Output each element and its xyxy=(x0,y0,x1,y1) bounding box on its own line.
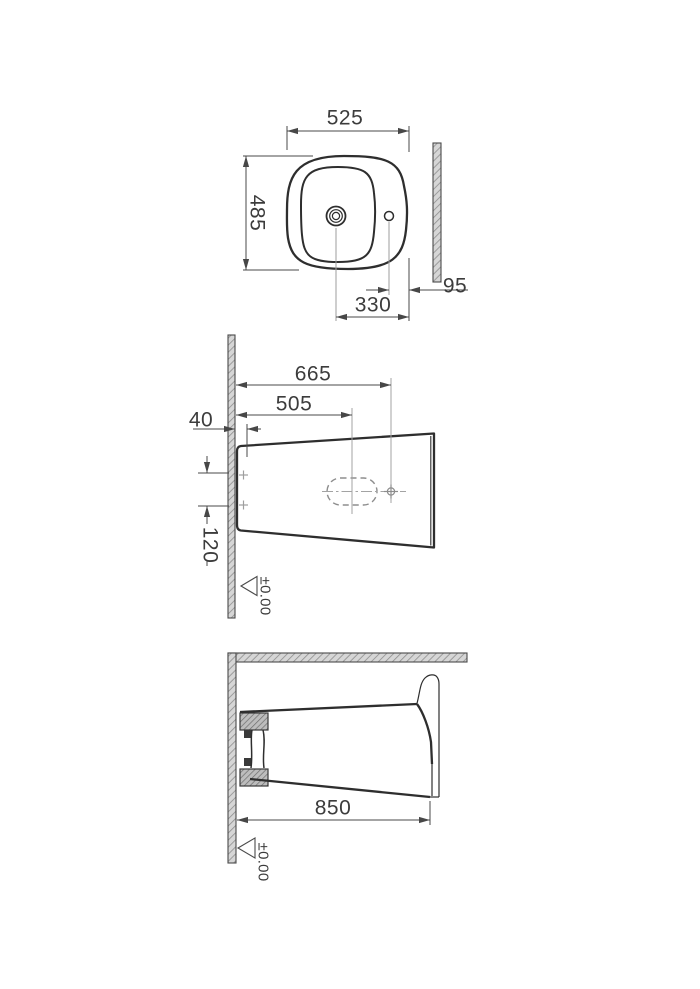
plan-hole-offset-label: 330 xyxy=(355,295,392,316)
basin-elevation-outline xyxy=(240,675,439,797)
side-datum-label: ±0.00 xyxy=(258,577,273,616)
mounting-bracket-icon xyxy=(240,713,268,786)
tap-hole-axis-icon xyxy=(384,485,398,499)
plan-view xyxy=(243,126,468,321)
dimension-drawing xyxy=(0,0,700,989)
wall-section-icon xyxy=(433,143,441,282)
side-fixing-offset-label: 40 xyxy=(189,410,213,431)
side-hole-icon xyxy=(385,212,394,221)
plan-width-label: 525 xyxy=(327,108,364,129)
elevation-height-label: 850 xyxy=(315,798,352,819)
side-fixing-spacing-label: 120 xyxy=(200,527,221,564)
floor-section-icon xyxy=(228,653,467,662)
side-drain-distance-label: 505 xyxy=(276,394,313,415)
elevation-datum-label: ±0.00 xyxy=(256,843,271,882)
basin-inner-bowl-outline xyxy=(301,167,375,262)
datum-level-icon xyxy=(238,838,255,858)
basin-profile-outline xyxy=(237,434,434,548)
wall-section-icon xyxy=(228,335,235,618)
elevation-view xyxy=(228,653,467,863)
side-tap-distance-label: 665 xyxy=(295,364,332,385)
fixing-hole-icons xyxy=(239,471,248,510)
plan-width-dimension xyxy=(287,126,409,152)
wall-section-icon xyxy=(228,653,236,863)
technical-drawing-page: 525 485 330 95 665 505 40 120 ±0.00 850 … xyxy=(0,0,700,989)
tap-hole-icon xyxy=(327,207,346,226)
plan-edge-gap-label: 95 xyxy=(443,276,467,297)
plan-depth-label: 485 xyxy=(247,195,268,232)
datum-level-icon xyxy=(241,577,257,596)
